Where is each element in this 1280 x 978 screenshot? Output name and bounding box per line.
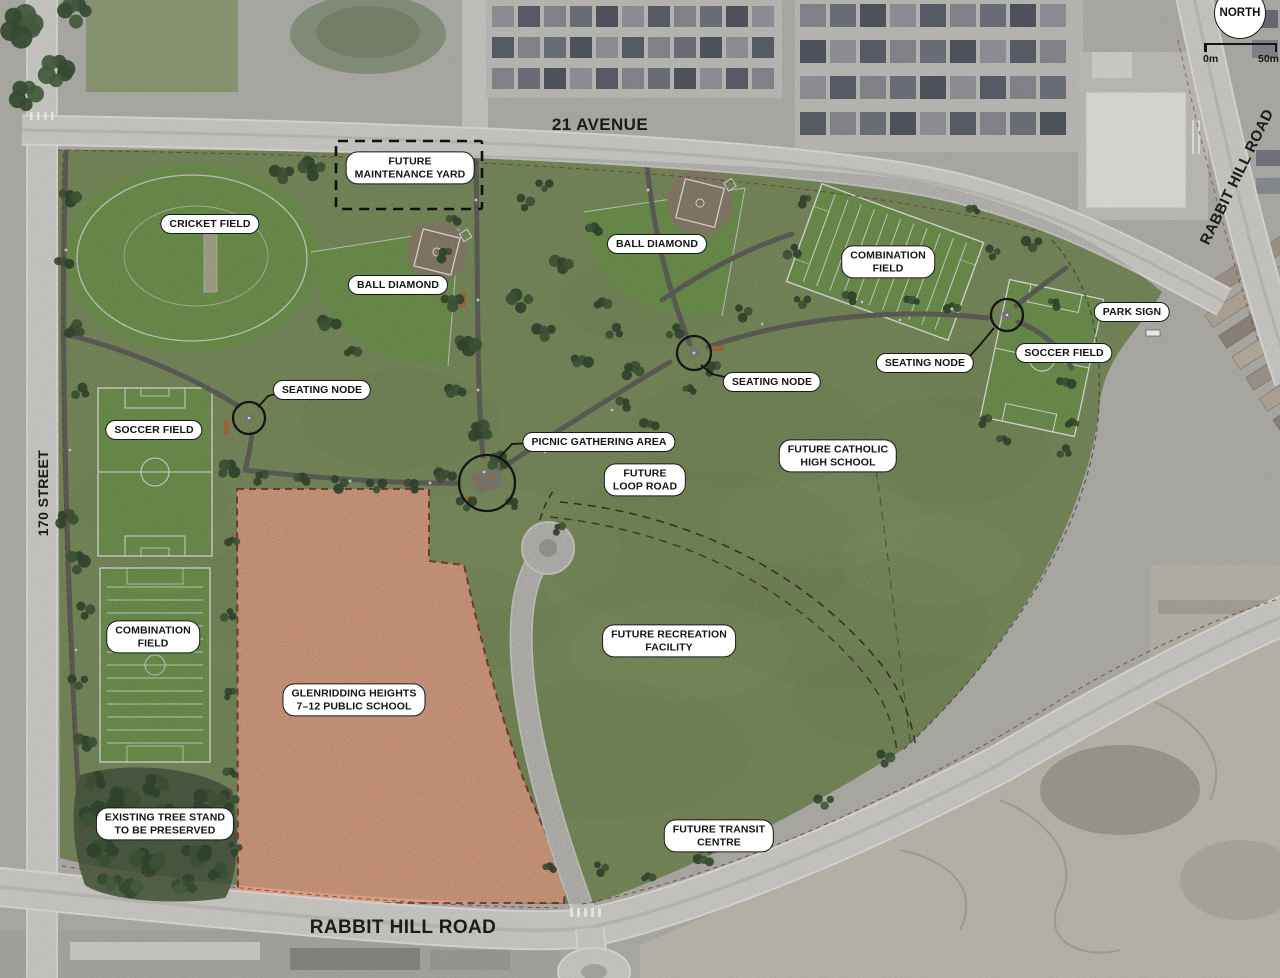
label-existing-tree-stand: EXISTING TREE STAND TO BE PRESERVED <box>96 807 234 840</box>
label-combination-field-east: COMBINATION FIELD <box>841 245 935 278</box>
label-combination-field-west: COMBINATION FIELD <box>106 620 200 653</box>
label-soccer-field-west: SOCCER FIELD <box>105 420 202 440</box>
label-future-transit-centre: FUTURE TRANSIT CENTRE <box>664 819 774 852</box>
road-label-rabbit-hill-south: RABBIT HILL ROAD <box>310 917 497 939</box>
label-ball-diamond-west: BALL DIAMOND <box>348 275 448 295</box>
site-plan-map: NORTH 0m 50m 21 AVENUE RABBIT HILL ROAD … <box>0 0 1280 978</box>
scale-start-label: 0m <box>1203 53 1218 65</box>
label-future-recreation-facility: FUTURE RECREATION FACILITY <box>602 624 736 657</box>
label-future-catholic-high-school: FUTURE CATHOLIC HIGH SCHOOL <box>779 439 897 472</box>
scale-bar: 0m 50m <box>1204 43 1277 65</box>
label-glenridding-heights-school: GLENRIDDING HEIGHTS 7–12 PUBLIC SCHOOL <box>283 683 426 716</box>
label-seating-node-east: SEATING NODE <box>876 353 974 373</box>
scale-end-label: 50m <box>1258 53 1279 65</box>
label-seating-node-central: SEATING NODE <box>723 372 821 392</box>
scale-bar-line <box>1204 43 1277 45</box>
label-seating-node-west: SEATING NODE <box>273 380 371 400</box>
road-label-170-street: 170 STREET <box>35 450 51 536</box>
label-cricket-field: CRICKET FIELD <box>160 214 259 234</box>
label-ball-diamond-central: BALL DIAMOND <box>607 234 707 254</box>
label-future-loop-road: FUTURE LOOP ROAD <box>604 463 686 496</box>
label-future-maintenance-yard: FUTURE MAINTENANCE YARD <box>346 151 475 184</box>
road-label-21-avenue: 21 AVENUE <box>552 115 648 135</box>
north-label: NORTH <box>1220 7 1261 19</box>
label-soccer-field-east: SOCCER FIELD <box>1015 343 1112 363</box>
label-park-sign: PARK SIGN <box>1094 302 1170 322</box>
label-picnic-gathering-area: PICNIC GATHERING AREA <box>522 432 675 452</box>
